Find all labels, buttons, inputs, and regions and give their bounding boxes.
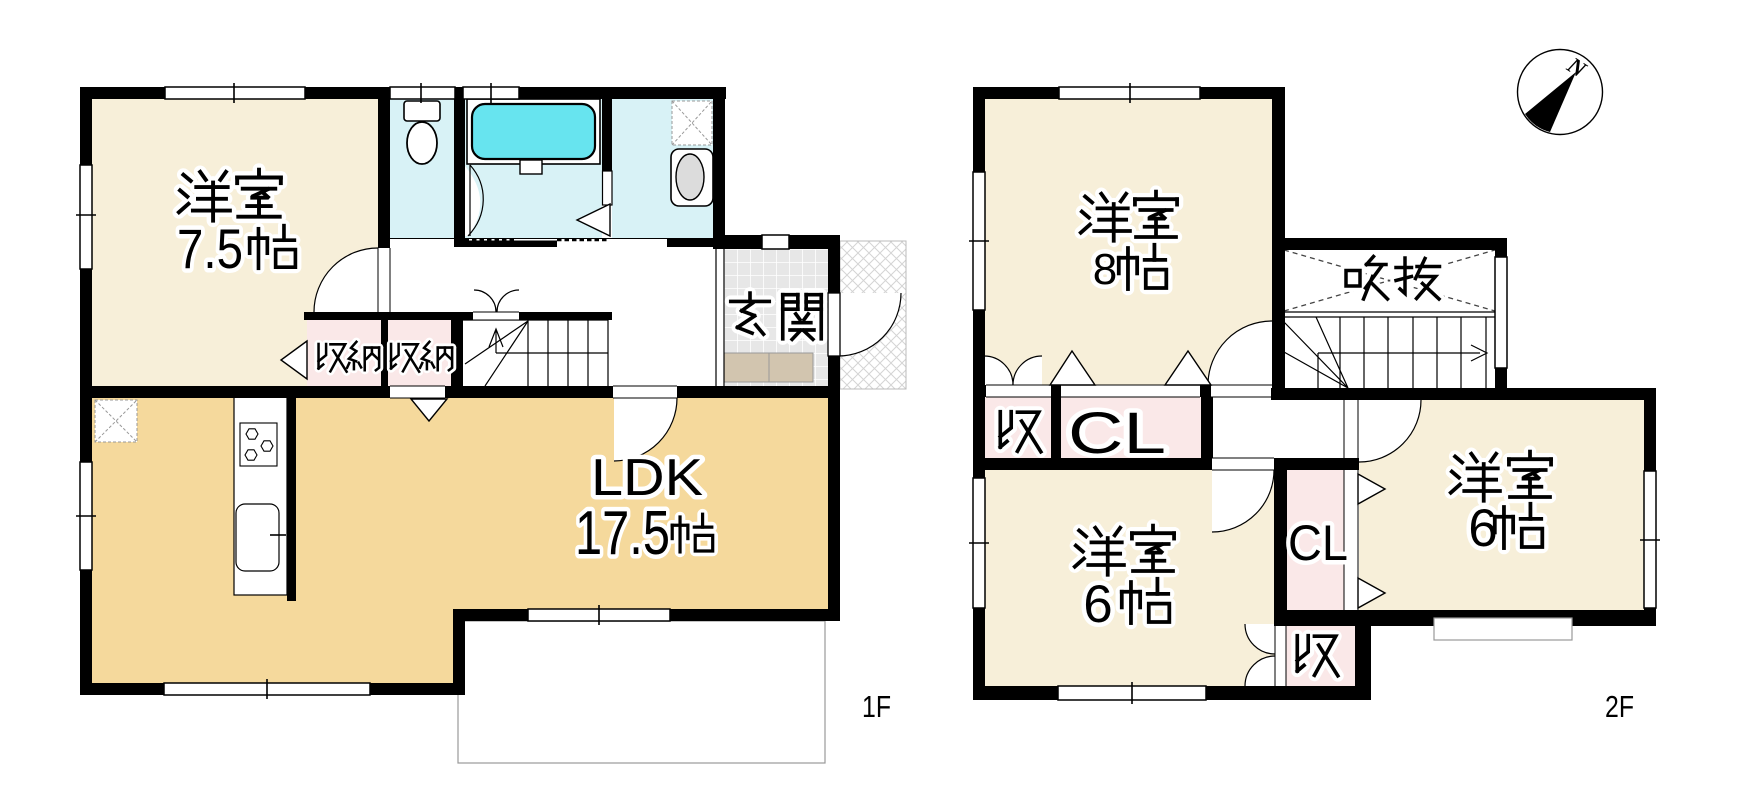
svg-text:CL: CL xyxy=(1288,515,1348,571)
svg-text:CL: CL xyxy=(1068,401,1166,466)
svg-text:6: 6 xyxy=(1083,575,1112,634)
svg-text:2F: 2F xyxy=(1605,689,1634,724)
svg-text:1F: 1F xyxy=(862,689,891,724)
svg-text:8: 8 xyxy=(1093,245,1117,294)
svg-text:7.5: 7.5 xyxy=(177,217,243,280)
svg-text:17.5: 17.5 xyxy=(575,499,670,568)
